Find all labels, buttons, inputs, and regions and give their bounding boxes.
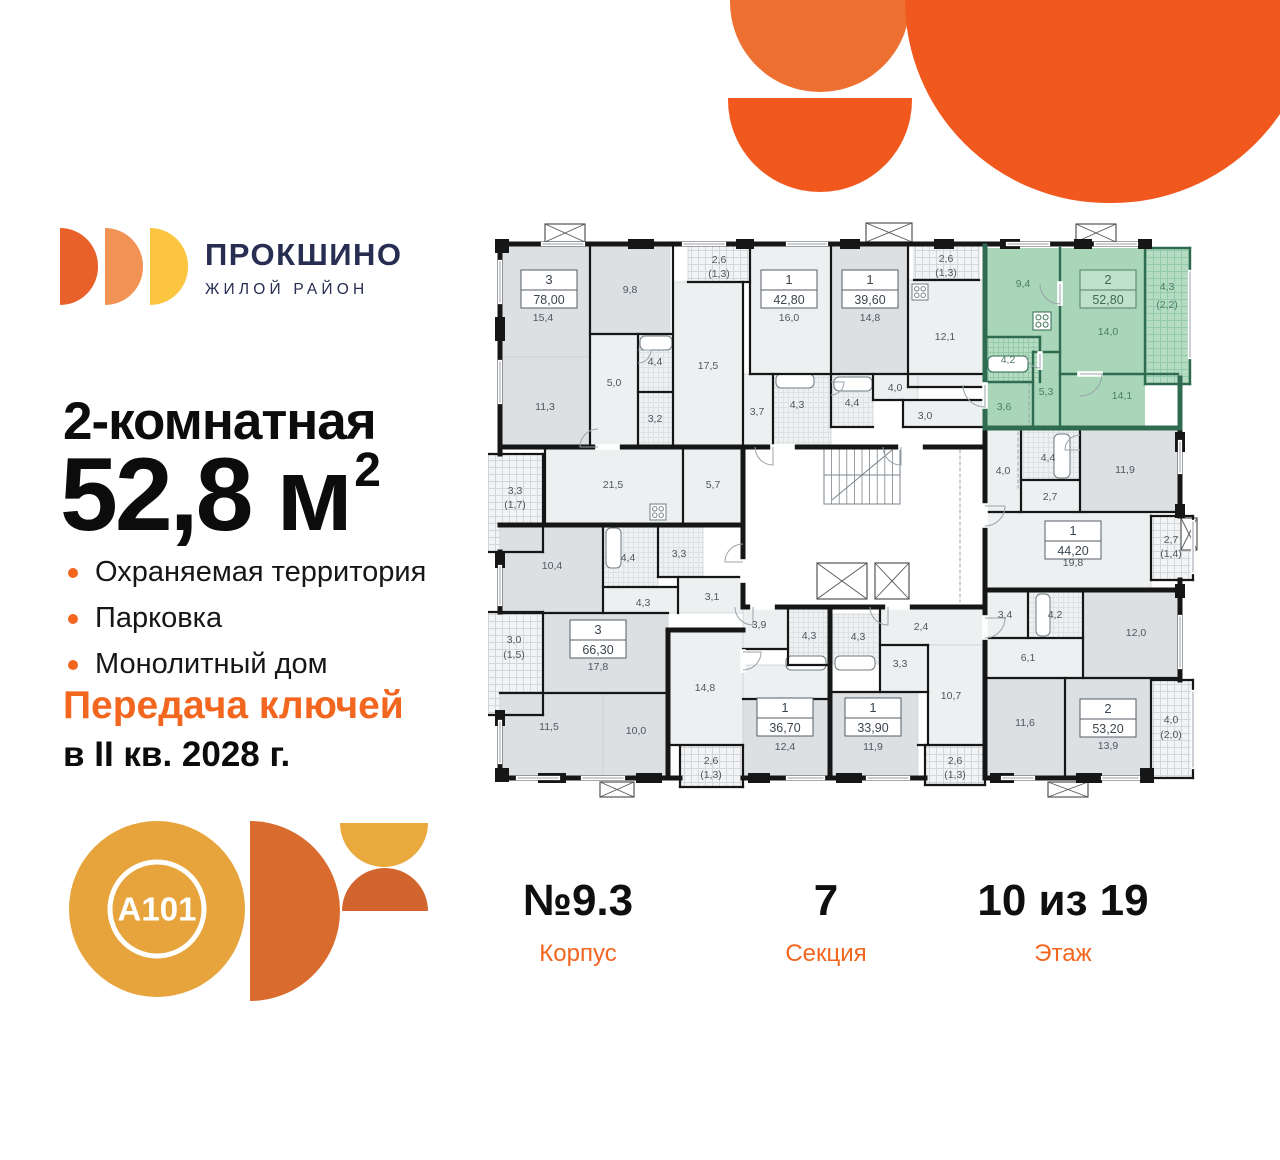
area-sup: 2: [354, 444, 381, 497]
selected-apartment-room: [1145, 248, 1190, 384]
room-area-label: 4,4: [648, 356, 663, 368]
room-area-label: 10,4: [542, 560, 563, 572]
room-area-label: 13,9: [1098, 740, 1119, 752]
building-number: №9.3: [523, 876, 633, 926]
room-area-label: 3,3: [672, 548, 687, 560]
area-value: 52,8 м: [60, 437, 350, 553]
room-area-label: 14,8: [695, 682, 716, 694]
room-area-label: 4,3: [790, 399, 805, 411]
apartment-total-area: 66,30: [582, 643, 613, 657]
a101-halfdisc: [250, 821, 340, 1001]
apartment-total-area: 53,20: [1092, 722, 1123, 736]
bathtub-icon: [1054, 434, 1070, 478]
apartment-rooms-count: 1: [869, 700, 876, 715]
room-area-label: 5,3: [1039, 386, 1054, 398]
room-area-label: 2,7: [1164, 534, 1179, 546]
apartment-label-box: 139,60: [842, 270, 898, 308]
floor-label: Этаж: [977, 940, 1148, 968]
wall-pier: [495, 317, 505, 341]
room-area-label: 3,0: [507, 634, 522, 646]
wall-pier: [1175, 584, 1185, 598]
room-area-label: 3,9: [752, 619, 767, 631]
shaft-icon: [866, 223, 912, 242]
room-area-label: 4,0: [996, 465, 1011, 477]
room-area-label: 3,0: [918, 410, 933, 422]
room-area-label: 4,0: [888, 382, 903, 394]
apartment-total-area: 42,80: [773, 293, 804, 307]
room-area-label: (1,3): [944, 769, 966, 781]
wall-pier: [840, 239, 860, 249]
apartment-total-area: 33,90: [857, 721, 888, 735]
a101-text: A101: [118, 891, 197, 928]
room-area-label: 5,0: [607, 377, 622, 389]
room-area-label: 3,7: [750, 406, 765, 418]
room-area-label: 4,2: [1001, 354, 1016, 366]
wall-pier: [748, 773, 770, 783]
apartment-rooms-count: 1: [781, 700, 788, 715]
apartment-rooms-count: 1: [785, 272, 792, 287]
apartment-label-box: 253,20: [1080, 699, 1136, 737]
bathtub-icon: [606, 528, 621, 568]
meta-building: №9.3 Корпус: [523, 876, 633, 968]
wall-pier: [1175, 504, 1185, 518]
stove-icon: [912, 284, 928, 300]
wall-pier: [1140, 768, 1154, 783]
room-area-label: 10,0: [626, 725, 647, 737]
selected-apartment-label-box: 252,80: [1080, 270, 1136, 308]
room-area-label: 3,3: [508, 485, 523, 497]
apartment-label-box: 144,20: [1045, 521, 1101, 559]
feature-text: Охраняемая территория: [95, 556, 426, 589]
room-area-label: (1,5): [503, 649, 525, 661]
decor-semicircle-small-bottom: [728, 98, 912, 192]
room-area-label: 4,3: [802, 630, 817, 642]
prokshino-logo: ПРОКШИНО ЖИЛОЙ РАЙОН: [60, 228, 403, 305]
room-area-label: 14,1: [1112, 390, 1133, 402]
room: [750, 246, 831, 374]
room-area-label: 4,2: [1048, 609, 1063, 621]
room-area-label: 2,7: [1043, 491, 1058, 503]
apartment-total-area: 36,70: [769, 721, 800, 735]
room-area-label: 11,5: [539, 721, 559, 733]
bullet-dot-icon: [68, 568, 78, 578]
feature-item: Охраняемая территория: [68, 556, 426, 589]
room-area-label: 16,0: [779, 312, 800, 324]
room-area-label: 2,4: [914, 621, 929, 633]
room-area-label: 15,4: [533, 312, 554, 324]
section-number: 7: [785, 876, 866, 926]
room-area-label: 12,4: [775, 741, 796, 753]
apartment-total-area: 52,80: [1092, 293, 1123, 307]
wall-pier: [1076, 773, 1102, 783]
apartment-label-box: 366,30: [570, 620, 626, 658]
floor-number: 10 из 19: [977, 876, 1148, 926]
room: [831, 246, 908, 374]
room-area-label: (1,4): [1160, 548, 1182, 560]
stove-icon: [650, 504, 666, 520]
wall-pier: [636, 773, 662, 783]
room-area-label: 2,6: [704, 755, 719, 767]
apartment-rooms-count: 3: [545, 272, 552, 287]
feature-text: Монолитный дом: [95, 648, 328, 681]
room-area-label: 3,6: [997, 401, 1012, 413]
room-area-label: 4,3: [851, 631, 866, 643]
listing-card: ПРОКШИНО ЖИЛОЙ РАЙОН 2-комнатная 52,8 м2…: [0, 0, 1280, 1160]
logo-halfdisc-2: [105, 228, 143, 305]
room-area-label: 11,3: [535, 401, 555, 413]
room-area-label: (1,7): [504, 499, 526, 511]
apartment-label-box: 378,00: [521, 270, 577, 308]
room-area-label: 12,0: [1126, 627, 1147, 639]
wall-pier: [1138, 239, 1152, 249]
logo-title: ПРОКШИНО: [205, 237, 403, 273]
room-area-label: (2,2): [1156, 299, 1178, 311]
room-area-label: 6,1: [1021, 652, 1036, 664]
room-area-label: 3,4: [998, 609, 1013, 621]
feature-text: Парковка: [95, 602, 222, 635]
apartment-rooms-count: 1: [1069, 523, 1076, 538]
room-area-label: 12,1: [935, 331, 956, 343]
staircase-icon: [824, 446, 900, 504]
apartment-total-area: 44,20: [1057, 544, 1088, 558]
room-area-label: 3,3: [893, 658, 908, 670]
meta-floor: 10 из 19 Этаж: [977, 876, 1148, 968]
apartment-label-box: 142,80: [761, 270, 817, 308]
room-area-label: 17,8: [588, 661, 609, 673]
room: [590, 334, 638, 447]
apartment-label-box: 136,70: [757, 698, 813, 736]
room-area-label: 3,1: [705, 591, 720, 603]
wall-pier: [934, 239, 954, 249]
shaft-icon: [545, 224, 585, 242]
apartment-rooms-count: 2: [1104, 701, 1111, 716]
wall-pier: [1074, 239, 1092, 249]
feature-list: Охраняемая территория Парковка Монолитны…: [68, 556, 426, 694]
room-area-label: 11,9: [863, 741, 883, 753]
room: [500, 693, 603, 778]
room-area-label: 17,5: [698, 360, 719, 372]
room-area-label: 2,6: [948, 755, 963, 767]
apartment-area: 52,8 м2: [60, 443, 381, 547]
room-area-label: 14,0: [1098, 326, 1119, 338]
wall-pier: [495, 239, 509, 253]
apartment-rooms-count: 1: [866, 272, 873, 287]
room-area-label: 4,4: [621, 552, 636, 564]
logo-halfdisc-3: [150, 228, 188, 305]
apartment-rooms-count: 3: [594, 622, 601, 637]
room-area-label: 9,8: [623, 284, 638, 296]
decor-semicircle-large: [905, 0, 1280, 203]
room-area-label: 3,2: [648, 413, 663, 425]
apartment-total-area: 39,60: [854, 293, 885, 307]
room-area-label: 4,3: [1160, 281, 1175, 293]
building-label: Корпус: [523, 940, 633, 968]
logo-subtitle: ЖИЛОЙ РАЙОН: [205, 281, 403, 299]
handover-date: в II кв. 2028 г.: [63, 735, 290, 775]
wall-pier: [836, 773, 862, 783]
a101-small-bottom: [342, 868, 428, 911]
decor-semicircle-small-top: [730, 0, 910, 92]
room-area-label: 2,6: [939, 253, 954, 265]
room: [880, 607, 985, 645]
room-area-label: 5,7: [706, 479, 721, 491]
room-area-label: 11,6: [1015, 717, 1035, 729]
wall-pier: [495, 768, 509, 782]
apartment-rooms-count: 2: [1104, 272, 1111, 287]
room-area-label: (1,3): [708, 268, 730, 280]
room-area-label: (1,3): [935, 267, 957, 279]
elevator-icon: [817, 563, 867, 599]
room-area-label: 4,0: [1164, 714, 1179, 726]
bathtub-icon: [776, 374, 814, 388]
room-area-label: 21,5: [603, 479, 624, 491]
bathtub-icon: [835, 656, 875, 670]
wall-pier: [736, 239, 754, 249]
bathtub-icon: [640, 336, 672, 350]
room-area-label: 14,8: [860, 312, 881, 324]
room-area-label: 4,4: [845, 397, 860, 409]
apartment-label-box: 133,90: [845, 698, 901, 736]
room-area-label: 2,6: [712, 254, 727, 266]
bullet-dot-icon: [68, 660, 78, 670]
room-area-label: (2,0): [1160, 729, 1182, 741]
shaft-icon: [1048, 782, 1088, 797]
room-area-label: (1,3): [700, 769, 722, 781]
bathtub-icon: [834, 377, 872, 391]
room-area-label: 9,4: [1016, 278, 1031, 290]
shaft-icon: [600, 782, 634, 797]
meta-section: 7 Секция: [785, 876, 866, 968]
feature-item: Монолитный дом: [68, 648, 426, 681]
floor-plan: 15,49,811,35,04,43,221,55,73,3(1,7)2,6(1…: [488, 222, 1204, 802]
room-area-label: 10,7: [941, 690, 962, 702]
elevator-icon: [875, 563, 909, 599]
room: [903, 400, 985, 427]
logo-halfdisc-1: [60, 228, 98, 305]
handover-title: Передача ключей: [63, 684, 404, 728]
room-area-label: 4,3: [636, 597, 651, 609]
stove-icon: [1033, 312, 1051, 330]
bathtub-icon: [786, 656, 826, 670]
a101-small-top: [340, 823, 428, 867]
a101-logo: A101: [60, 816, 440, 1021]
feature-item: Парковка: [68, 602, 426, 635]
apartment-total-area: 78,00: [533, 293, 564, 307]
prokshino-logo-shapes-icon: [60, 228, 188, 305]
bullet-dot-icon: [68, 614, 78, 624]
wall-pier: [628, 239, 654, 249]
section-label: Секция: [785, 940, 866, 968]
room-area-label: 4,4: [1041, 452, 1056, 464]
room-area-label: 11,9: [1115, 464, 1135, 476]
